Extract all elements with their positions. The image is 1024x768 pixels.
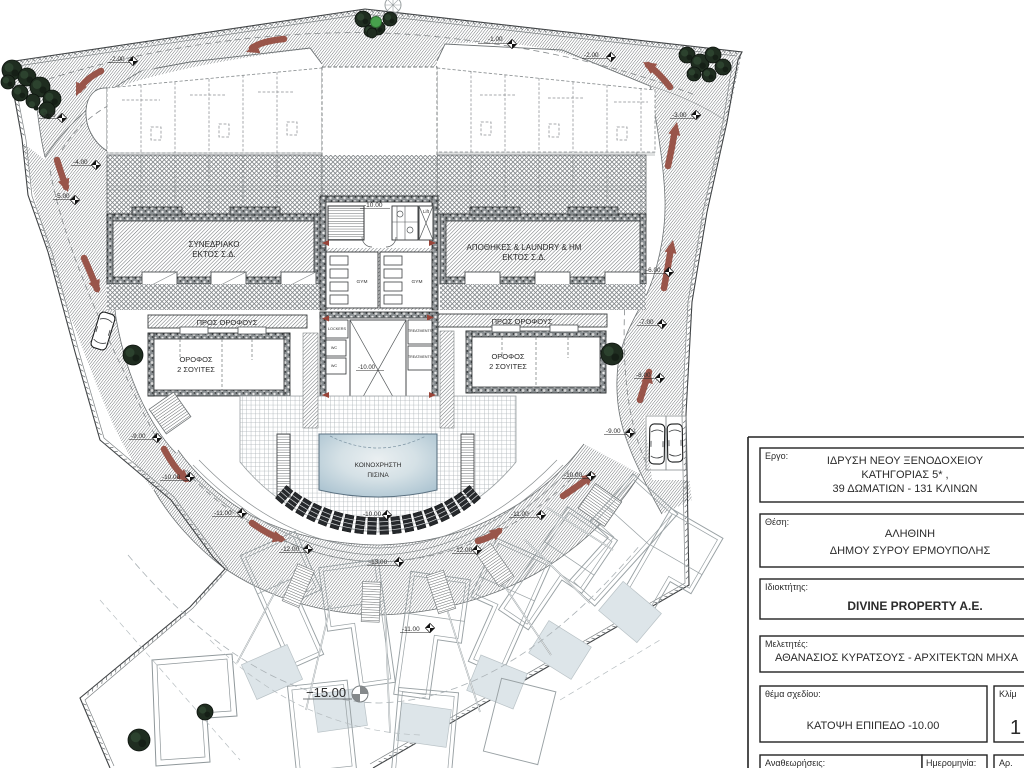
svg-text:ΣΥΝΕΔΡΙΑΚΟ: ΣΥΝΕΔΡΙΑΚΟ	[189, 240, 240, 249]
svg-text:-10.00: -10.00	[162, 474, 181, 481]
svg-text:-9.00: -9.00	[606, 428, 621, 435]
svg-text:ΑΘΑΝΑΣΙΟΣ ΚΥΡΑΤΣΟΥΣ - ΑΡΧΙΤΕΚΤ: ΑΘΑΝΑΣΙΟΣ ΚΥΡΑΤΣΟΥΣ - ΑΡΧΙΤΕΚΤΩΝ ΜΗΧΑ	[775, 652, 1019, 664]
svg-text:-1.00: -1.00	[488, 36, 503, 43]
svg-text:GYM: GYM	[412, 279, 423, 285]
svg-text:Ιδιοκτήτης:: Ιδιοκτήτης:	[765, 582, 808, 592]
svg-text:-10.00: -10.00	[358, 365, 376, 371]
svg-text:ΚΑΤΟΨΗ ΕΠΙΠΕΔΟ -10.00: ΚΑΤΟΨΗ ΕΠΙΠΕΔΟ -10.00	[807, 720, 940, 732]
svg-text:WC: WC	[331, 346, 338, 350]
svg-text:ΚΑΤΗΓΟΡΙΑΣ 5* ,: ΚΑΤΗΓΟΡΙΑΣ 5* ,	[861, 469, 948, 481]
svg-text:-2.00: -2.00	[110, 56, 125, 63]
svg-text:ΟΡΟΦΟΣ: ΟΡΟΦΟΣ	[179, 355, 212, 364]
svg-text:ΑΠΟΘΗΚΕΣ & LAUNDRY & ΗΜ: ΑΠΟΘΗΚΕΣ & LAUNDRY & ΗΜ	[467, 243, 582, 252]
svg-text:ΕΚΤΟΣ Σ.Δ.: ΕΚΤΟΣ Σ.Δ.	[502, 253, 546, 262]
svg-text:DIVINE PROPERTY A.E.: DIVINE PROPERTY A.E.	[847, 599, 982, 613]
svg-text:WC: WC	[331, 364, 338, 368]
svg-text:Εργο:: Εργο:	[765, 451, 788, 461]
svg-text:-11.00: -11.00	[214, 510, 232, 517]
svg-text:ΟΡΟΦΟΣ: ΟΡΟΦΟΣ	[491, 352, 524, 361]
svg-text:-13.00: -13.00	[369, 559, 388, 566]
svg-text:2 ΣΟΥΙΤΕΣ: 2 ΣΟΥΙΤΕΣ	[489, 362, 527, 371]
svg-text:-8.00: -8.00	[636, 372, 651, 379]
svg-text:-10.00: -10.00	[363, 511, 382, 518]
svg-text:1: 1	[1010, 717, 1021, 739]
svg-text:ΑΛΗΘΙΝΗ: ΑΛΗΘΙΝΗ	[885, 528, 935, 540]
svg-text:-7.00: -7.00	[639, 319, 654, 326]
svg-text:TREATMENTS: TREATMENTS	[408, 355, 433, 359]
svg-text:TREATMENTS: TREATMENTS	[408, 329, 433, 333]
svg-text:ΙΔΡΥΣΗ ΝΕΟΥ ΞΕΝΟΔΟΧΕΙΟΥ: ΙΔΡΥΣΗ ΝΕΟΥ ΞΕΝΟΔΟΧΕΙΟΥ	[827, 455, 984, 467]
svg-text:-11.00: -11.00	[511, 511, 529, 518]
svg-text:-2.00: -2.00	[584, 52, 599, 59]
svg-text:ΔΗΜΟΥ ΣΥΡΟΥ ΕΡΜΟΥΠΟΛΗΣ: ΔΗΜΟΥ ΣΥΡΟΥ ΕΡΜΟΥΠΟΛΗΣ	[830, 545, 991, 557]
svg-text:θέμα σχεδίου:: θέμα σχεδίου:	[765, 689, 821, 699]
svg-text:GYM: GYM	[357, 279, 368, 285]
svg-text:−15.00: −15.00	[306, 685, 346, 700]
svg-text:39 ΔΩΜΑΤΙΩΝ - 131 ΚΛΙΝΩΝ: 39 ΔΩΜΑΤΙΩΝ - 131 ΚΛΙΝΩΝ	[833, 483, 978, 495]
svg-text:LOCKERS: LOCKERS	[328, 327, 347, 331]
svg-text:-4.00: -4.00	[73, 159, 88, 166]
svg-text:-9.00: -9.00	[131, 433, 146, 440]
svg-text:Μελετητές:: Μελετητές:	[765, 639, 808, 649]
svg-text:ΕΚΤΟΣ Σ.Δ.: ΕΚΤΟΣ Σ.Δ.	[192, 250, 236, 259]
svg-text:-6.00: -6.00	[646, 267, 661, 274]
svg-text:Ημερομηνία:: Ημερομηνία:	[926, 758, 976, 768]
svg-text:-12.00: -12.00	[281, 546, 300, 553]
svg-text:ΚΟΙΝΟΧΡΗΣΤΗ: ΚΟΙΝΟΧΡΗΣΤΗ	[355, 462, 402, 469]
svg-text:ΠΙΣΙΝΑ: ΠΙΣΙΝΑ	[367, 472, 389, 479]
svg-text:-3.00: -3.00	[672, 112, 687, 119]
svg-text:Lift: Lift	[423, 209, 430, 214]
svg-text:2 ΣΟΥΙΤΕΣ: 2 ΣΟΥΙΤΕΣ	[177, 365, 215, 374]
svg-text:-5.00: -5.00	[55, 193, 70, 200]
svg-text:-10.00: -10.00	[564, 472, 583, 479]
svg-text:Θέση:: Θέση:	[765, 517, 789, 527]
svg-text:-11.00: -11.00	[402, 626, 420, 633]
svg-text:Αρ.: Αρ.	[999, 758, 1013, 768]
svg-text:-10.00: -10.00	[364, 202, 383, 209]
svg-text:Αναθεωρήσεις:: Αναθεωρήσεις:	[765, 758, 825, 768]
svg-text:-3.00: -3.00	[41, 112, 56, 119]
svg-text:Κλίμ: Κλίμ	[999, 689, 1017, 699]
svg-text:ΠΡΟΣ ΟΡΟΦΟΥΣ: ΠΡΟΣ ΟΡΟΦΟΥΣ	[197, 318, 258, 327]
svg-text:-12.00: -12.00	[454, 547, 473, 554]
